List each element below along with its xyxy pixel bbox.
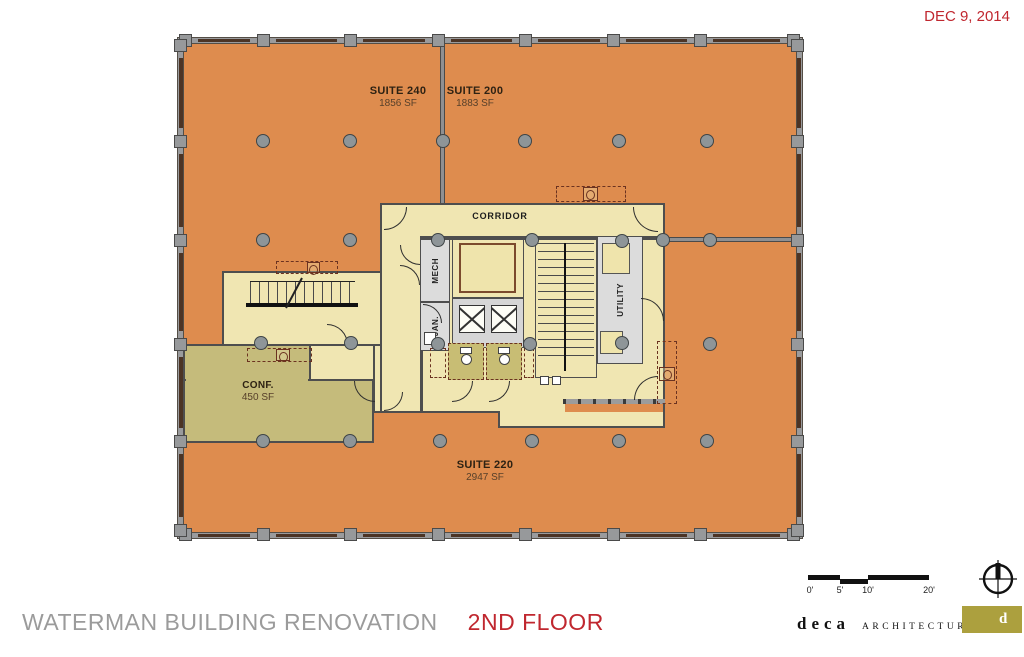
suite-220-name: SUITE 220 (425, 459, 545, 471)
column (703, 233, 717, 247)
column (343, 233, 357, 247)
stair-stringer-west (246, 303, 358, 307)
wall-suite200-suite220 (663, 237, 797, 242)
vestibule (309, 344, 375, 381)
scale-label-20: 20' (923, 585, 935, 595)
pilaster (344, 34, 357, 47)
column (431, 337, 445, 351)
column (525, 434, 539, 448)
window-segment (713, 39, 780, 43)
column (343, 134, 357, 148)
pilaster (174, 524, 187, 537)
corridor-label: CORRIDOR (437, 211, 563, 221)
column (703, 337, 717, 351)
scale-bar: 0' 5' 10' 20' (808, 570, 938, 598)
project-title: WATERMAN BUILDING RENOVATION (22, 609, 438, 636)
utility-label: UTILITY (616, 283, 625, 317)
sink-corridor (583, 187, 598, 201)
elevator-cab-2 (491, 305, 517, 333)
elevator-cab-1 (459, 305, 485, 333)
pilaster (432, 34, 445, 47)
pilaster (257, 34, 270, 47)
window-segment (797, 357, 801, 428)
mech-room: MECH (420, 239, 450, 302)
sink-conf (276, 349, 290, 361)
drawing-sheet: DEC 9, 2014 MECH JAN. (0, 0, 1024, 657)
scale-label-5: 5' (837, 585, 844, 595)
column (256, 434, 270, 448)
pilaster (694, 528, 707, 541)
window-segment (626, 39, 687, 43)
toilet-1 (460, 347, 472, 363)
column (256, 233, 270, 247)
window-segment (713, 534, 780, 538)
window-segment (179, 154, 183, 227)
column (612, 434, 626, 448)
column (700, 134, 714, 148)
column (254, 336, 268, 350)
pilaster (791, 524, 804, 537)
window-segment (198, 39, 250, 43)
scale-label-10: 10' (862, 585, 874, 595)
window-segment (626, 534, 687, 538)
column (523, 337, 537, 351)
pilaster (257, 528, 270, 541)
conf-name: CONF. (198, 380, 318, 391)
window-segment (179, 253, 183, 331)
pilaster (791, 338, 804, 351)
core-extension (498, 411, 665, 428)
column (433, 434, 447, 448)
pilaster (607, 528, 620, 541)
window-segment (797, 253, 801, 331)
firm-logo-mark: d (962, 606, 1022, 633)
window-segment (276, 534, 337, 538)
sink-suite220 (659, 367, 675, 381)
pilaster (344, 528, 357, 541)
suite-200-area: 1883 SF (415, 98, 535, 109)
suite-220-label: SUITE 220 2947 SF (425, 459, 545, 483)
column (436, 134, 450, 148)
column (343, 434, 357, 448)
column (700, 434, 714, 448)
pilaster (519, 34, 532, 47)
restroom-counter-west (430, 348, 446, 378)
stair-treads-west (250, 281, 355, 303)
column (525, 233, 539, 247)
floor-title: 2ND FLOOR (468, 609, 604, 636)
window-segment (179, 58, 183, 128)
column (518, 134, 532, 148)
pilaster (174, 39, 187, 52)
pilaster (791, 435, 804, 448)
firm-name: deca (797, 614, 850, 634)
column (431, 233, 445, 247)
scale-segment (808, 575, 840, 580)
window-segment (451, 39, 512, 43)
window-segment (797, 454, 801, 517)
conf-area: 450 SF (198, 392, 318, 403)
stair-fixture-1 (540, 376, 549, 385)
toilet-2 (498, 347, 510, 363)
window-segment (179, 357, 183, 428)
scale-segment (868, 575, 929, 580)
window-segment (797, 154, 801, 227)
pilaster (174, 435, 187, 448)
window-segment (363, 534, 425, 538)
scale-segment (840, 579, 868, 584)
restroom-counter-east (524, 348, 534, 378)
suite220-notch (565, 404, 663, 412)
pilaster (174, 135, 187, 148)
stair-treads-main (538, 243, 594, 356)
column (615, 234, 629, 248)
pilaster (791, 39, 804, 52)
window-segment (276, 39, 337, 43)
stair-rail-main (564, 243, 566, 371)
pilaster (519, 528, 532, 541)
window-segment (538, 534, 600, 538)
suite-220-area: 2947 SF (425, 472, 545, 483)
column (344, 336, 358, 350)
scale-label-0: 0' (807, 585, 814, 595)
window-segment (198, 534, 250, 538)
window-segment (538, 39, 600, 43)
north-compass-icon (975, 556, 1021, 602)
pilaster (607, 34, 620, 47)
title-bar: WATERMAN BUILDING RENOVATION 2ND FLOOR (22, 609, 604, 636)
column (615, 336, 629, 350)
pilaster (174, 338, 187, 351)
pilaster (694, 34, 707, 47)
pilaster (432, 528, 445, 541)
wall-suite240-suite200 (440, 43, 445, 205)
pilaster (791, 234, 804, 247)
window-segment (797, 58, 801, 128)
pilaster (791, 135, 804, 148)
pilaster (174, 234, 187, 247)
window-segment (179, 454, 183, 517)
column (656, 233, 670, 247)
utility-equipment-1 (602, 243, 630, 274)
column (256, 134, 270, 148)
window-segment (451, 534, 512, 538)
suite-200-name: SUITE 200 (415, 85, 535, 97)
sink-west (307, 262, 320, 273)
suite-200-label: SUITE 200 1883 SF (415, 85, 535, 109)
window-segment (363, 39, 425, 43)
stair-fixture-2 (552, 376, 561, 385)
column (612, 134, 626, 148)
conf-label: CONF. 450 SF (198, 380, 318, 403)
date-stamp: DEC 9, 2014 (898, 8, 1010, 25)
core-west-wall (420, 350, 423, 412)
mech-label: MECH (431, 258, 440, 284)
shaft-opening (459, 243, 516, 293)
